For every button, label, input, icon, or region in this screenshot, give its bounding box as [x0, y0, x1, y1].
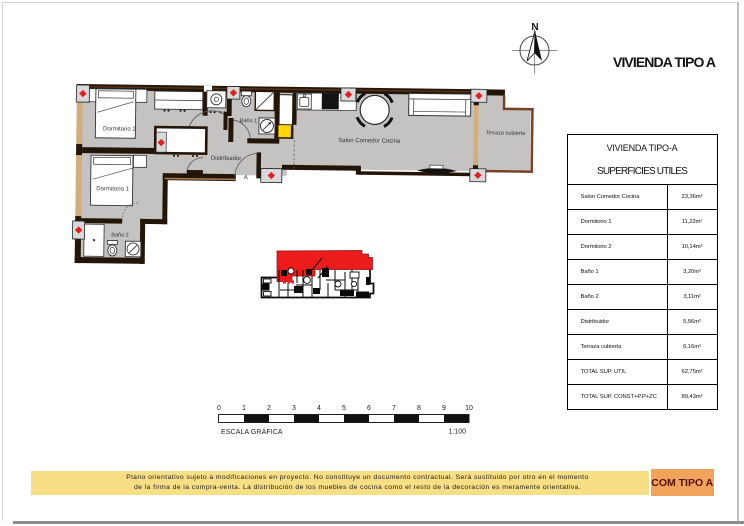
svg-text:9: 9 [442, 405, 446, 412]
svg-text:N: N [531, 22, 538, 33]
svg-text:8: 8 [417, 405, 421, 412]
svg-text:3: 3 [292, 405, 296, 412]
svg-text:0: 0 [217, 405, 221, 412]
svg-text:Salon Comedor Cocina: Salon Comedor Cocina [338, 138, 401, 145]
svg-text:Baño 1: Baño 1 [240, 118, 258, 124]
svg-text:Baño 2: Baño 2 [111, 232, 129, 238]
svg-text:5: 5 [342, 405, 346, 412]
svg-text:Dormitorio 1: Dormitorio 1 [96, 186, 129, 192]
svg-text:1:100: 1:100 [448, 429, 466, 436]
svg-text:7: 7 [392, 405, 396, 412]
svg-text:Dormitorio 2: Dormitorio 2 [103, 126, 136, 132]
svg-text:ESCALA GRÁFICA: ESCALA GRÁFICA [221, 427, 283, 436]
svg-text:4: 4 [317, 405, 321, 412]
svg-text:1: 1 [242, 405, 246, 412]
svg-text:2: 2 [267, 405, 271, 412]
svg-text:A: A [244, 175, 248, 181]
svg-text:Terraza cubierta: Terraza cubierta [486, 130, 526, 137]
svg-text:Distribuidor: Distribuidor [211, 156, 241, 162]
svg-text:10: 10 [465, 405, 473, 412]
svg-text:6: 6 [367, 405, 371, 412]
